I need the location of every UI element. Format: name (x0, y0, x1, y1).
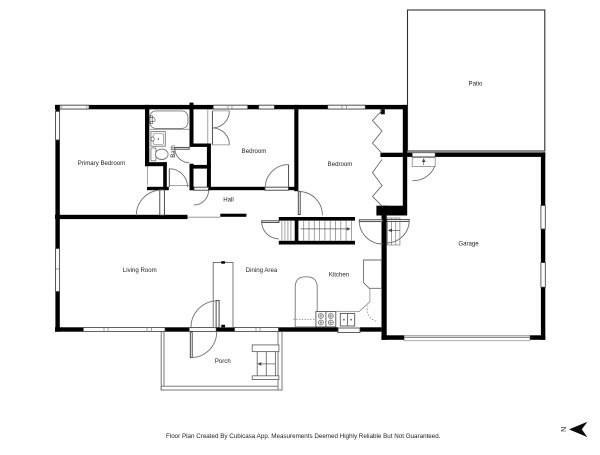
svg-text:Garage: Garage (458, 241, 479, 248)
svg-text:N: N (561, 427, 568, 432)
svg-text:Dining Area: Dining Area (246, 267, 278, 274)
svg-text:Hall: Hall (223, 197, 234, 204)
svg-text:Kitchen: Kitchen (329, 272, 349, 279)
svg-text:Porch: Porch (215, 358, 231, 365)
svg-text:Primary Bedroom: Primary Bedroom (78, 160, 125, 167)
svg-text:Bedroom: Bedroom (328, 161, 353, 168)
svg-text:Bedroom: Bedroom (242, 148, 267, 155)
svg-text:Living Room: Living Room (123, 267, 157, 274)
svg-text:Floor Plan Created By Cubicasa: Floor Plan Created By Cubicasa App. Meas… (166, 433, 441, 440)
svg-text:Patio: Patio (469, 81, 484, 88)
